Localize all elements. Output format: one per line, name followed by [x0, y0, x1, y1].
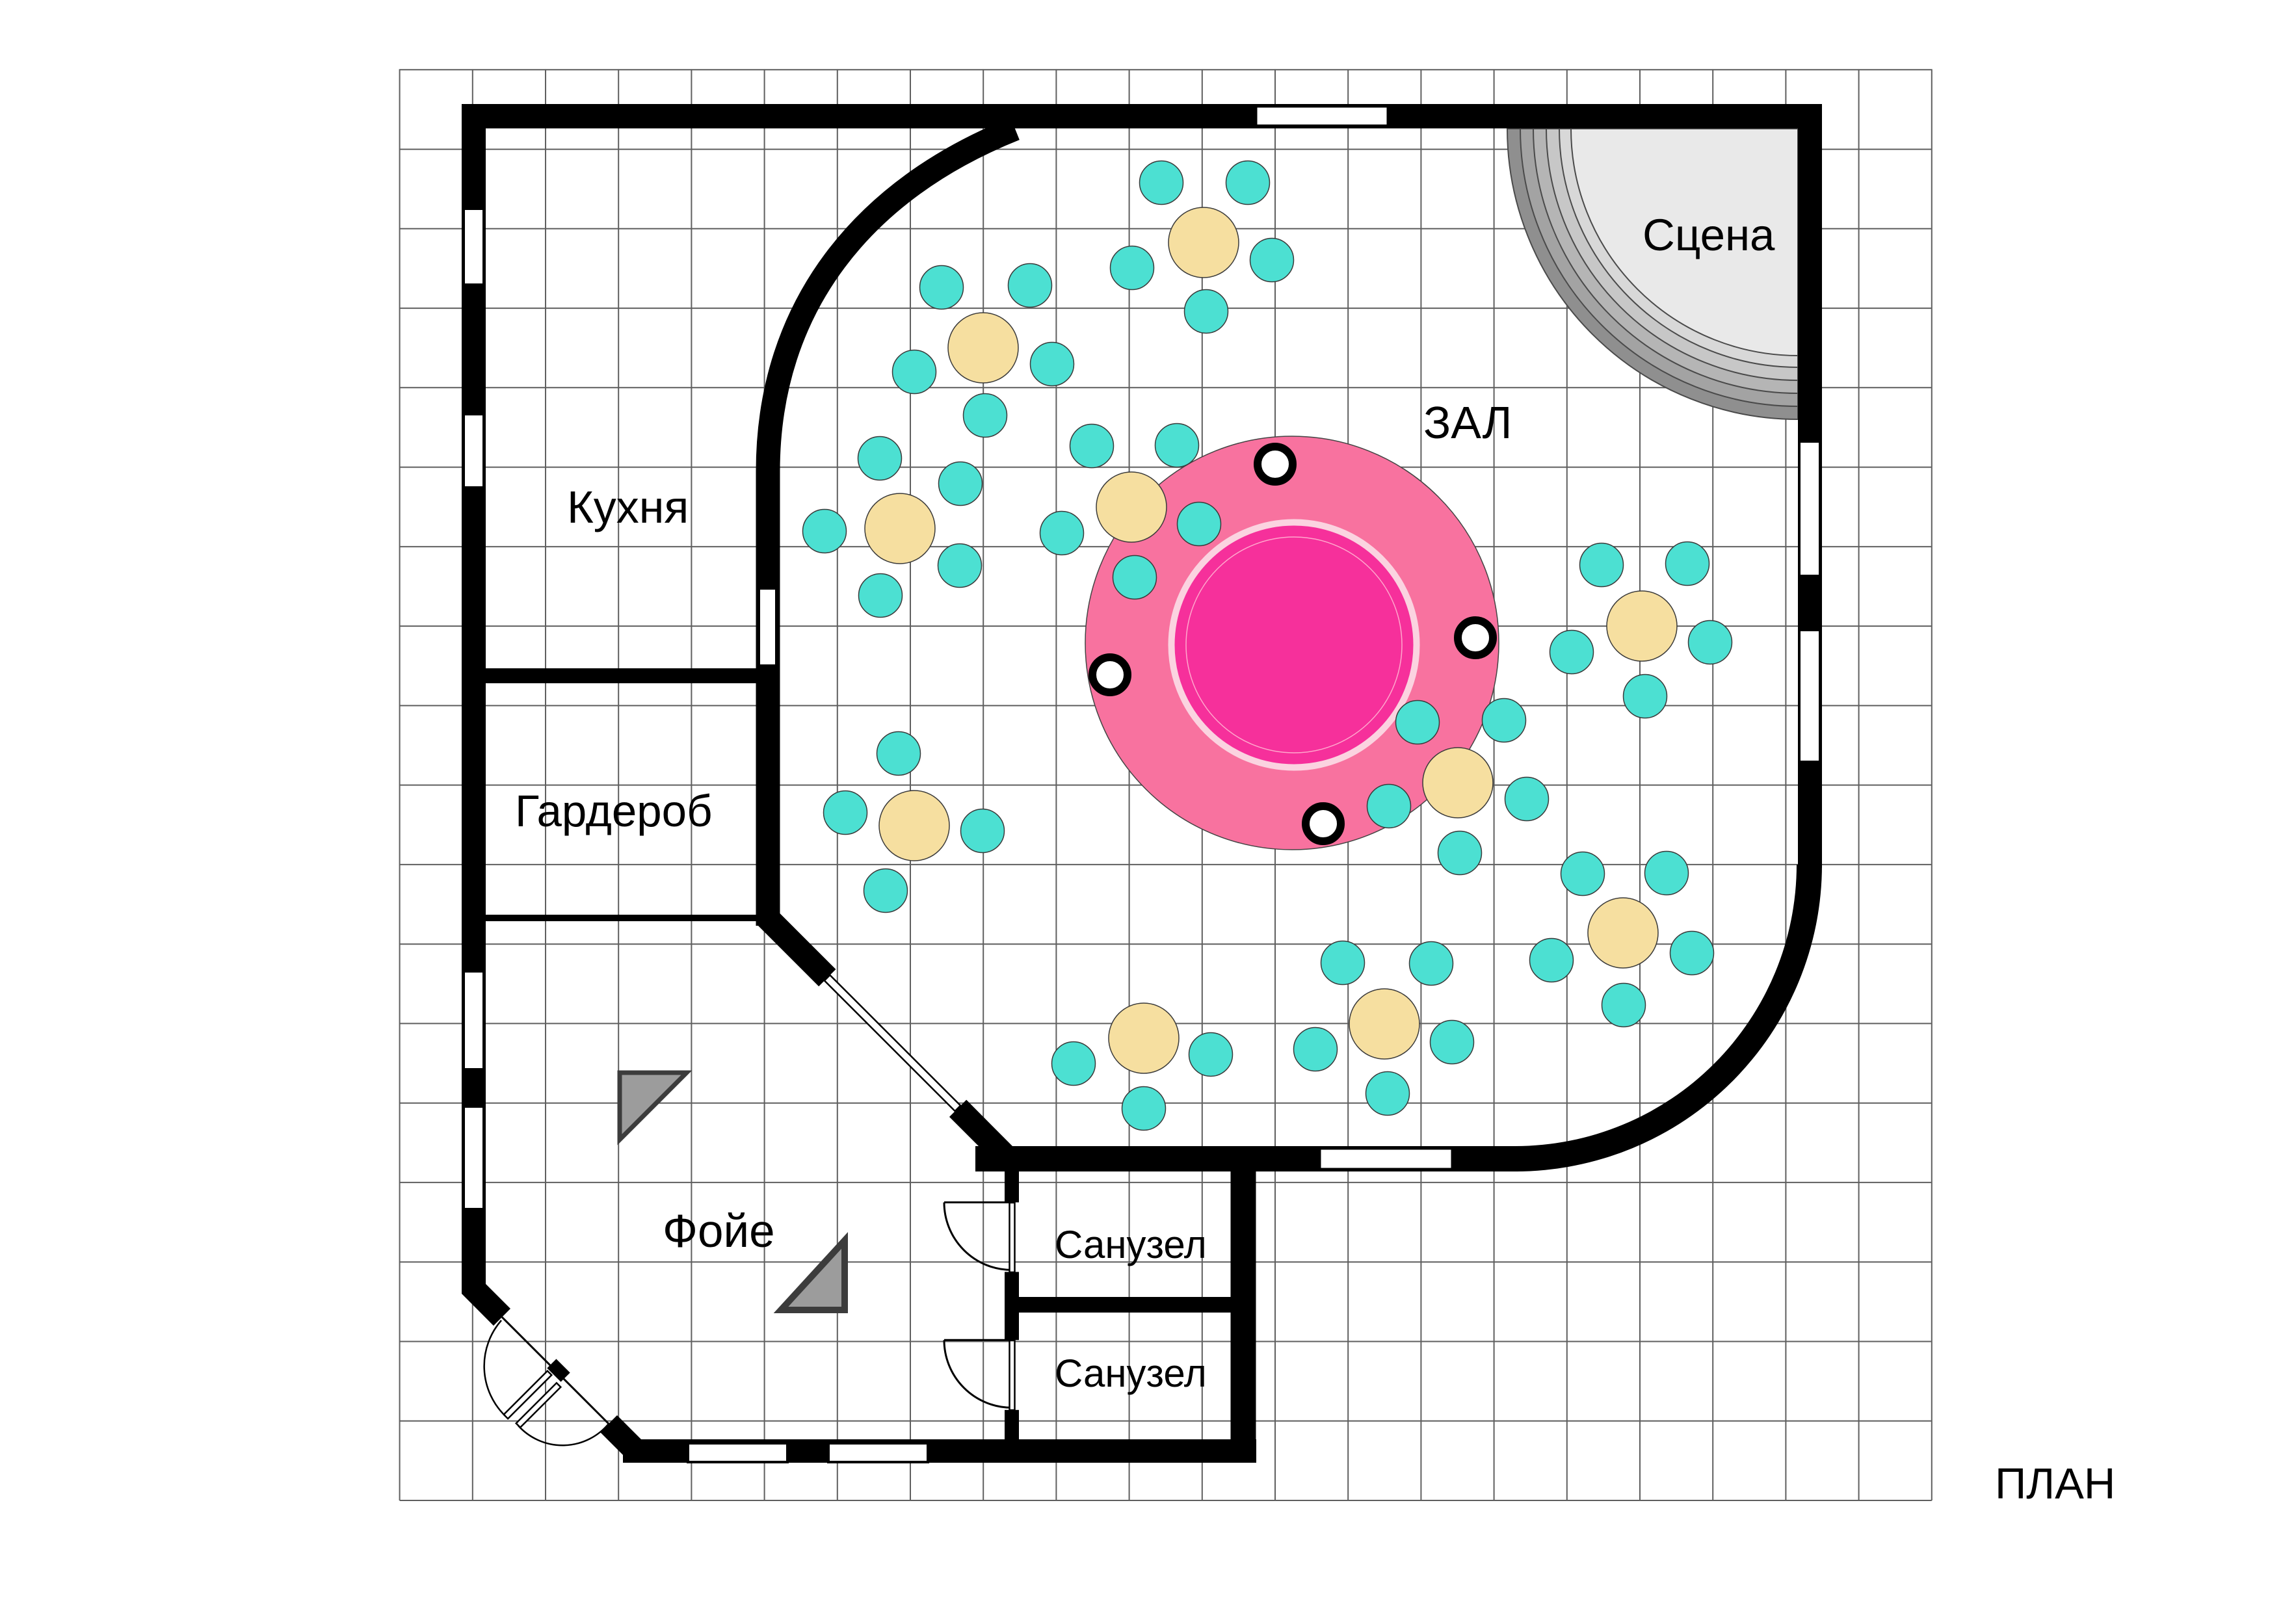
- svg-text:Фойе: Фойе: [663, 1206, 775, 1257]
- svg-text:Санузел: Санузел: [1055, 1223, 1207, 1266]
- svg-text:ЗАЛ: ЗАЛ: [1423, 397, 1512, 448]
- svg-text:Кухня: Кухня: [567, 482, 689, 532]
- svg-text:ПЛАН: ПЛАН: [1995, 1459, 2115, 1508]
- svg-text:Санузел: Санузел: [1055, 1352, 1207, 1395]
- svg-text:Сцена: Сцена: [1643, 210, 1775, 260]
- svg-text:Гардероб: Гардероб: [515, 786, 713, 836]
